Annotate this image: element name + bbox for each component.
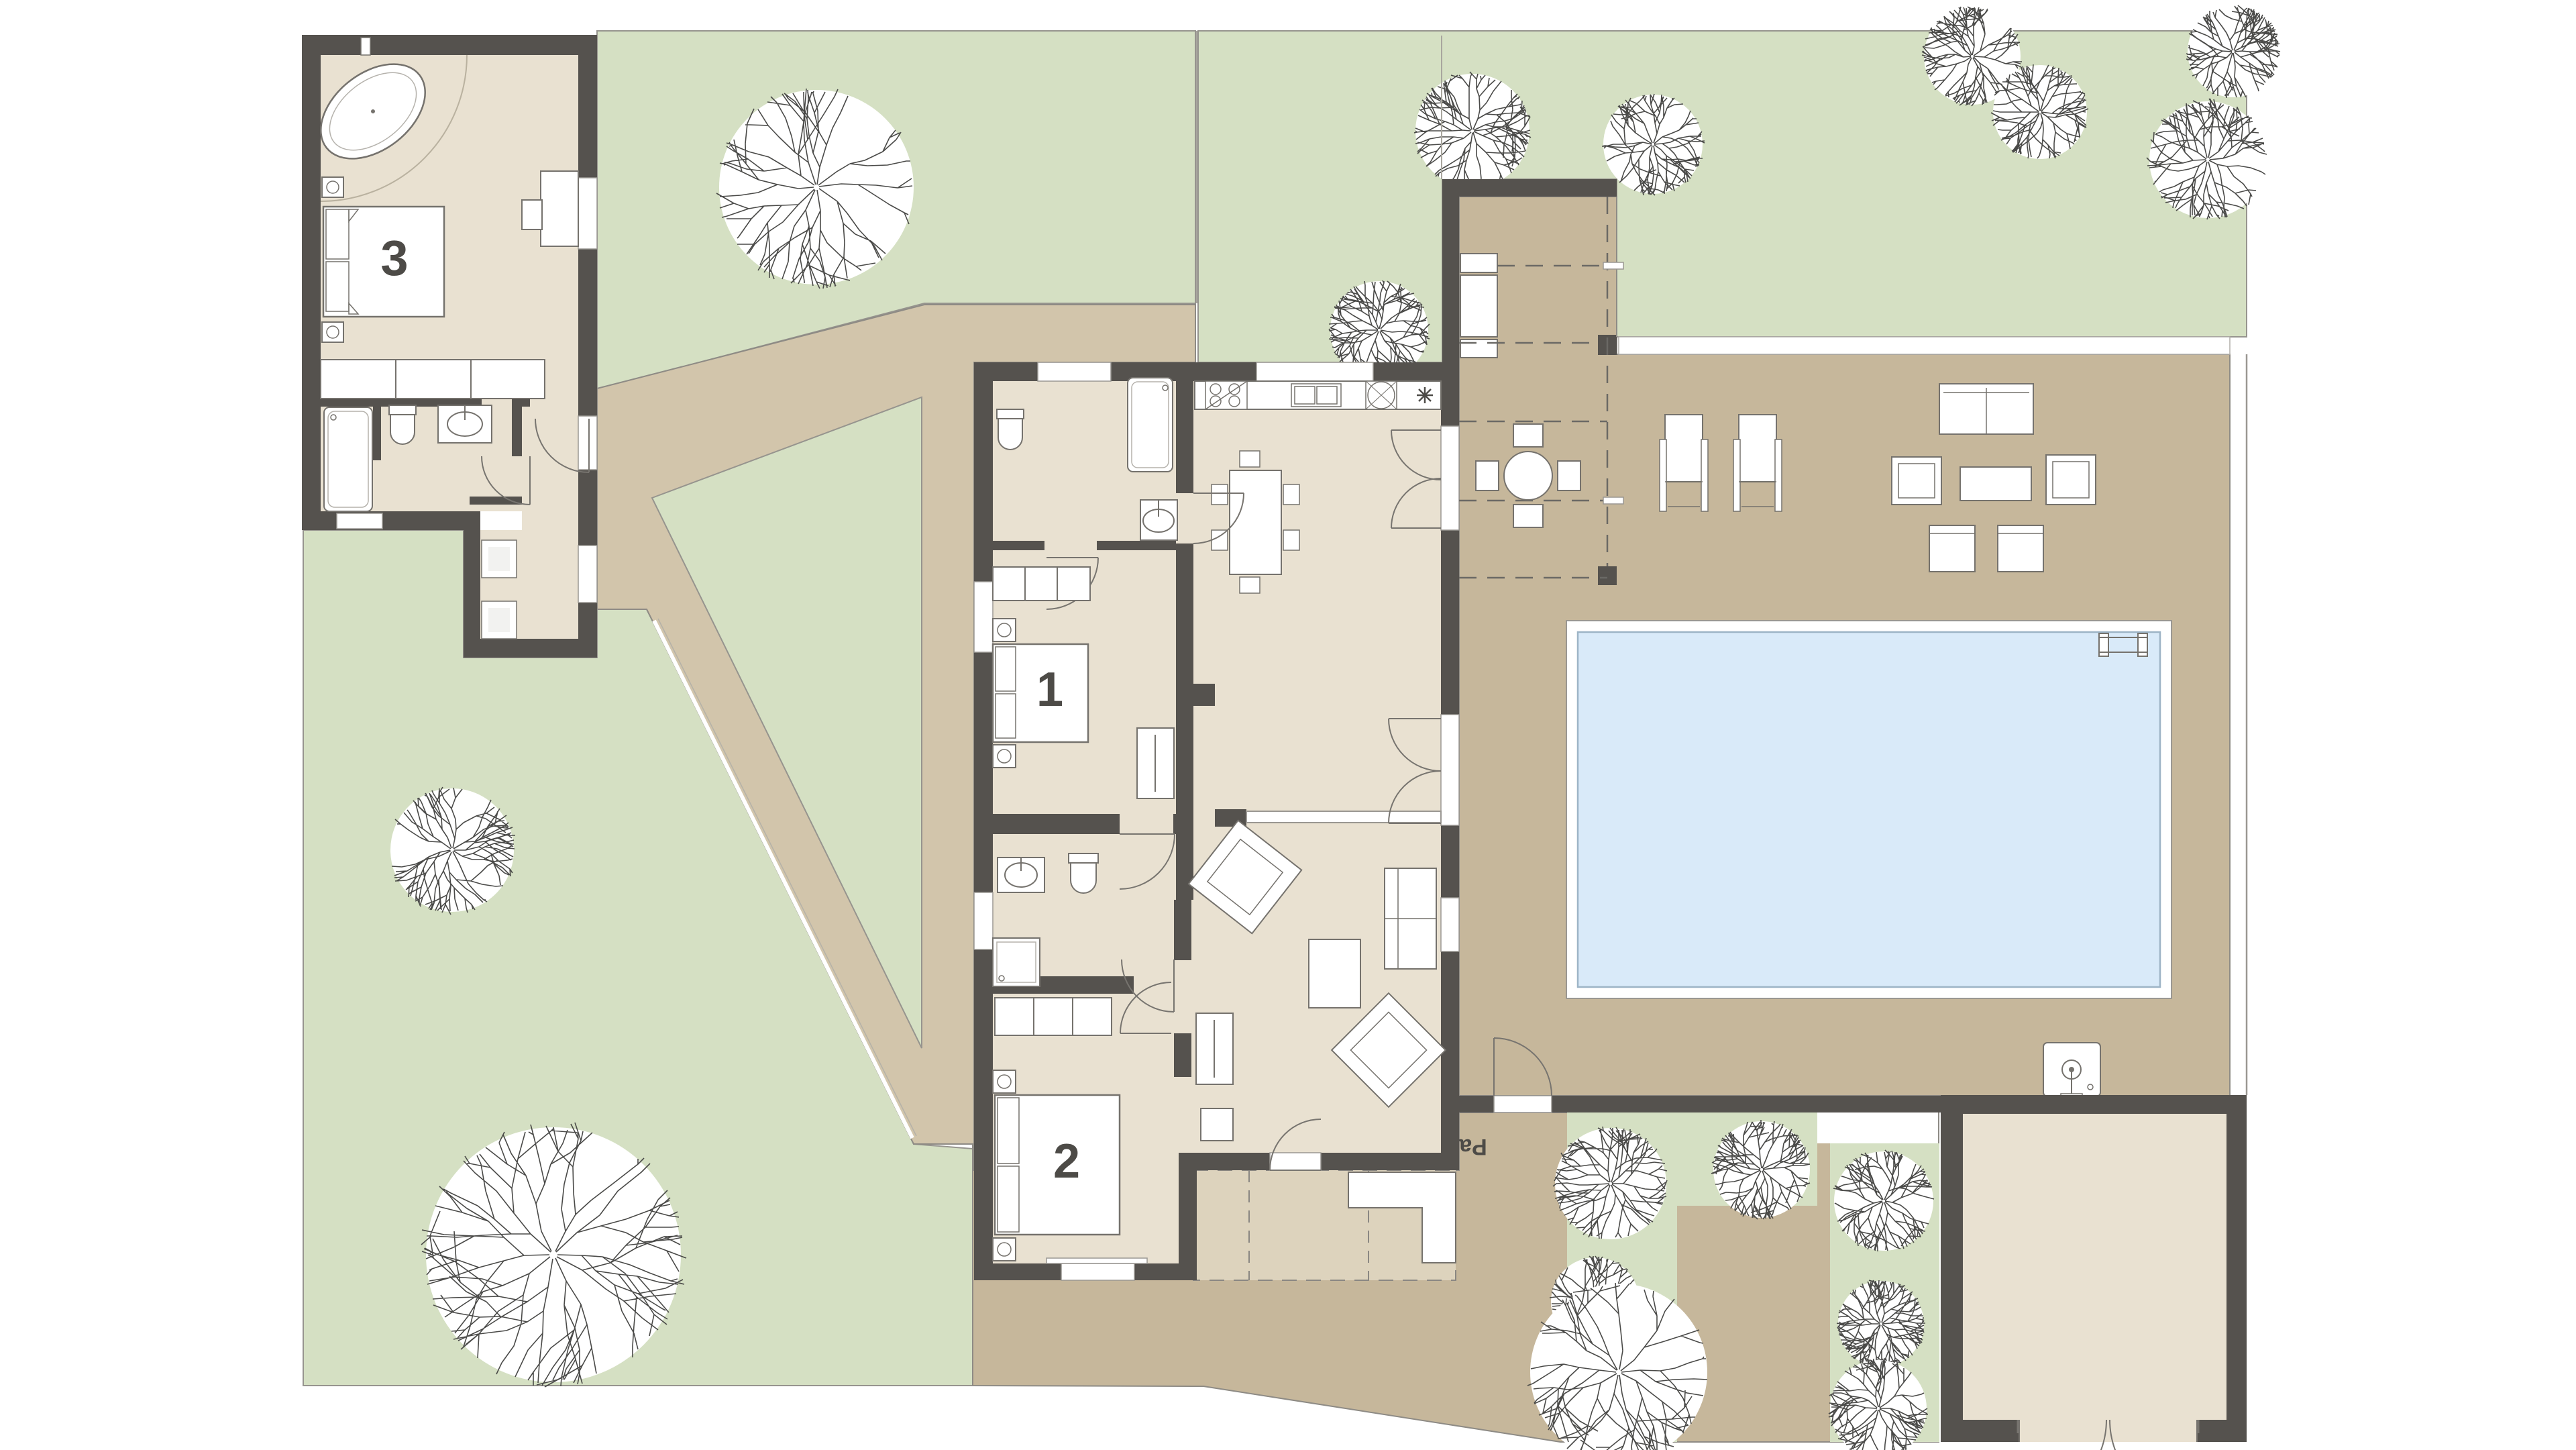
- svg-text:1: 1: [1036, 663, 1063, 717]
- svg-text:3: 3: [380, 230, 408, 286]
- svg-text:2: 2: [1053, 1135, 1080, 1188]
- svg-text:Pa: Pa: [1458, 1134, 1487, 1159]
